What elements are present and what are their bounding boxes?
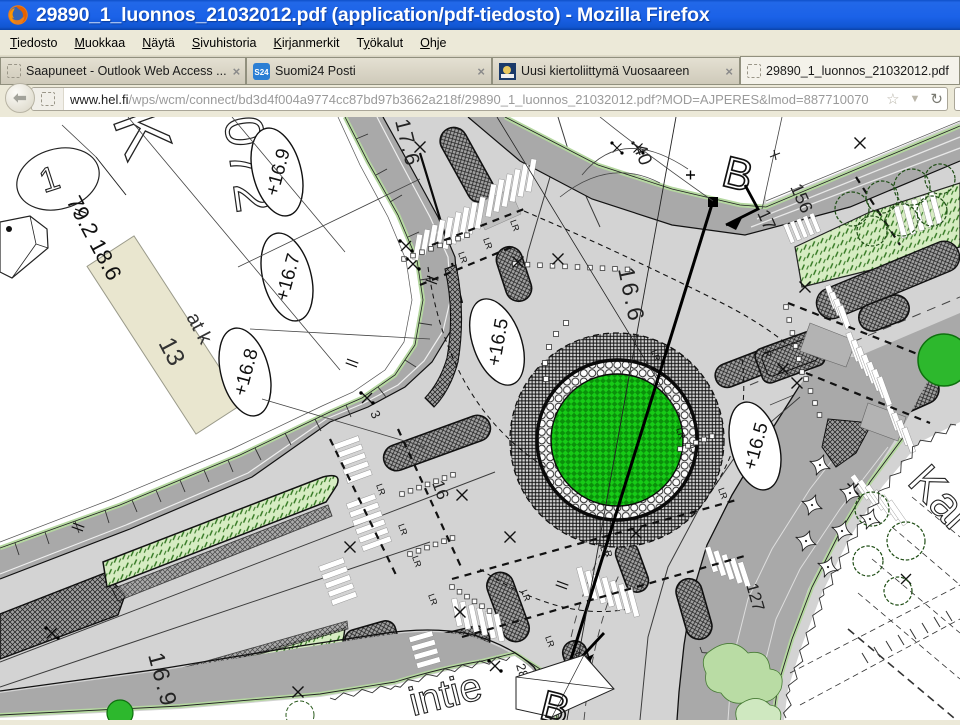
svg-text:S24: S24 (254, 68, 269, 77)
